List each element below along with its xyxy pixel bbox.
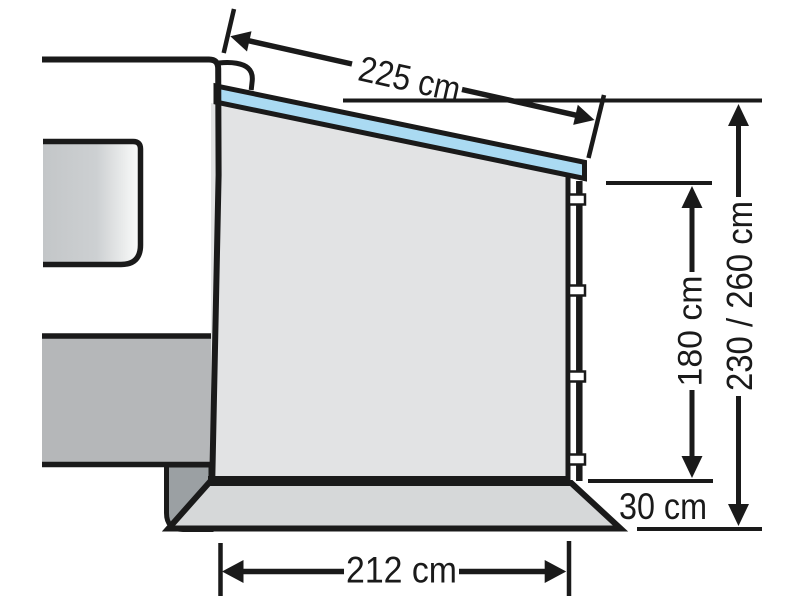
svg-text:180 cm: 180 cm — [672, 276, 710, 387]
svg-text:30 cm: 30 cm — [619, 486, 707, 527]
svg-text:230 / 260 cm: 230 / 260 cm — [719, 201, 760, 391]
svg-text:212 cm: 212 cm — [346, 550, 457, 591]
